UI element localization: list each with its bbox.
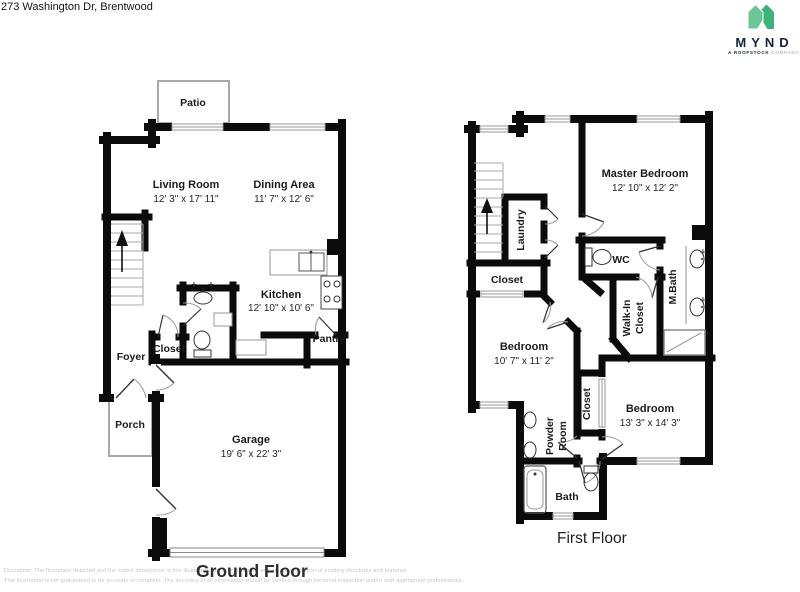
sink-icon [194,292,212,304]
room-label-hall-closet: Closet [491,274,524,286]
mbath-vanity [686,246,706,324]
garage-corner-block [152,518,167,555]
room-label-foyer: Foyer [117,351,146,363]
ground-closet-door [158,315,178,337]
room-dims-kitchen: 12' 10" x 10' 6" [248,303,314,314]
room-label-mbath: M.Bath [667,270,679,305]
first-floor-title: First Floor [557,530,627,548]
room-dims-master-bedroom: 12' 10" x 12' 2" [612,183,678,194]
ground-interior-walls [105,213,346,365]
stove-icon [321,276,342,309]
half-bath-fixtures [192,282,214,357]
garage-entry-door [151,364,174,391]
room-label-pantry: Pantry [313,333,346,345]
bath-toilet-icon [584,466,598,491]
room-label-mid-closet: Closet [581,387,593,420]
garage-side-door [151,487,176,517]
shower-icon [664,330,705,355]
room-label-living-room: Living Room [153,179,220,191]
floorplan-svg: Patio Living Room 12' 3" x 17' 11" Dinin… [0,0,800,592]
room-dims-living-room: 12' 3" x 17' 11" [153,194,219,205]
room-label-wc: WC [612,254,630,266]
room-label-garage: Garage [232,434,270,446]
room-label-ground-closet: Closet [153,343,186,355]
room-dims-bedroom-b: 13' 3" x 14' 3" [620,418,681,429]
room-label-laundry: Laundry [515,209,527,251]
wc-door [639,246,660,270]
room-dims-dining-area: 11' 7" x 12' 6" [254,194,314,205]
room-dims-garage: 19' 6" x 22' 3" [221,449,282,460]
counter-small [214,313,232,326]
kitchen-counter [270,250,327,275]
ground-floor-title: Ground Floor [196,561,308,582]
toilet-icon [194,331,210,349]
ground-floor-plan: Patio Living Room 12' 3" x 17' 11" Dinin… [103,81,346,557]
ground-stairs [111,224,143,305]
room-label-walkin-line2: Closet [634,301,646,334]
hall-closet-bifold-door [480,289,524,299]
room-label-porch: Porch [115,419,145,431]
room-label-patio: Patio [180,97,206,109]
room-label-bedroom-b: Bedroom [626,403,675,415]
room-label-bedroom-a: Bedroom [500,341,549,353]
room-label-walkin-line1: Walk-In [621,300,633,337]
mid-closet-slider-door [597,377,607,429]
sink-icon [524,442,536,458]
bathtub-icon [524,466,546,513]
room-label-master-bedroom: Master Bedroom [602,168,689,180]
room-label-bath: Bath [555,491,578,503]
room-dims-bedroom-a: 10' 7" x 11' 2" [494,356,554,367]
room-label-powder-line2: Room [557,421,569,451]
sink-icon [524,412,536,428]
bedroom-a-doors [543,302,568,329]
fridge-block [327,239,344,255]
master-corner-block [692,225,709,240]
room-label-kitchen: Kitchen [261,289,302,301]
room-label-dining-area: Dining Area [253,179,315,191]
first-floor-plan: Master Bedroom 12' 10" x 12' 2" Laundry … [468,113,712,522]
front-door [114,379,148,403]
room-label-powder-line1: Powder [544,417,556,455]
floorplan-page: 273 Washington Dr, Brentwood MYND A ROOF… [0,0,800,592]
counter-nook [236,340,266,355]
wc-toilet-icon [585,248,611,266]
